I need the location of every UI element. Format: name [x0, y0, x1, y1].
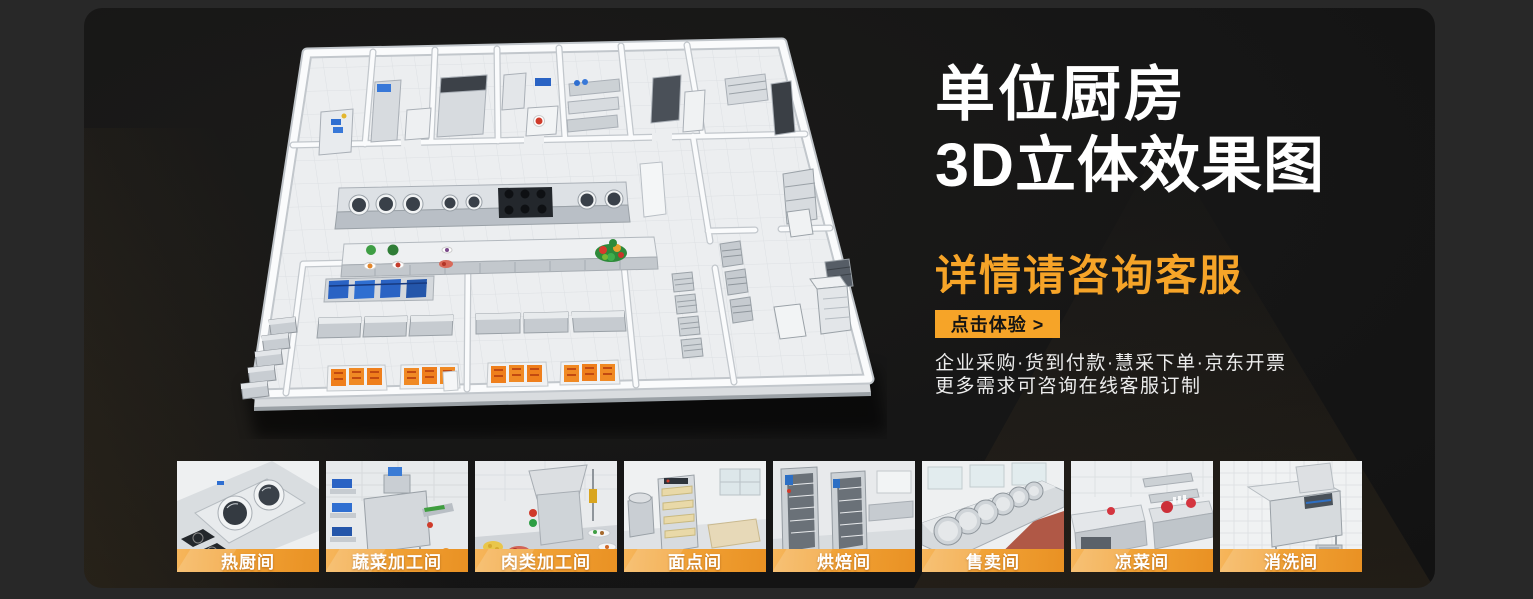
hero-block: 单位厨房 3D立体效果图 详情请咨询客服 点击体验 > 企业采购·货到付款·慧采… [935, 62, 1435, 398]
info-line2: 更多需求可咨询在线客服订制 [935, 375, 1435, 398]
kitchen-floorplan-3d [225, 24, 887, 439]
cta-button[interactable]: 点击体验 > [935, 310, 1060, 338]
banner-panel: 单位厨房 3D立体效果图 详情请咨询客服 点击体验 > 企业采购·货到付款·慧采… [84, 8, 1435, 588]
gallery-item-meat-processing[interactable]: 肉类加工间 [475, 461, 617, 572]
room-gallery: 热厨间 蔬菜加工间 [177, 461, 1362, 572]
gallery-item-cold-dishes[interactable]: 凉菜间 [1071, 461, 1213, 572]
gallery-item-serving[interactable]: 售卖间 [922, 461, 1064, 572]
info-text: 企业采购·货到付款·慧采下单·京东开票 更多需求可咨询在线客服订制 [935, 352, 1435, 398]
gallery-item-washing[interactable]: 消洗间 [1220, 461, 1362, 572]
gallery-label: 消洗间 [1220, 549, 1362, 572]
title-line2: 3D立体效果图 [935, 130, 1435, 200]
cook-line [335, 182, 630, 229]
gallery-item-baking[interactable]: 烘焙间 [773, 461, 915, 572]
blue-machines [324, 276, 434, 302]
gallery-label: 售卖间 [922, 549, 1064, 572]
gallery-item-pastry[interactable]: 面点间 [624, 461, 766, 572]
floorplan-svg [225, 24, 887, 439]
gallery-label: 面点间 [624, 549, 766, 572]
gallery-label: 热厨间 [177, 549, 319, 572]
title-line1: 单位厨房 [935, 62, 1435, 128]
page-title: 单位厨房 3D立体效果图 [935, 62, 1435, 200]
gallery-item-hot-kitchen[interactable]: 热厨间 [177, 461, 319, 572]
gallery-label: 凉菜间 [1071, 549, 1213, 572]
gallery-item-vegetable-processing[interactable]: 蔬菜加工间 [326, 461, 468, 572]
gallery-label: 蔬菜加工间 [326, 549, 468, 572]
gallery-label: 烘焙间 [773, 549, 915, 572]
subtitle: 详情请咨询客服 [935, 252, 1435, 300]
gallery-label: 肉类加工间 [475, 549, 617, 572]
info-line1: 企业采购·货到付款·慧采下单·京东开票 [935, 352, 1435, 375]
